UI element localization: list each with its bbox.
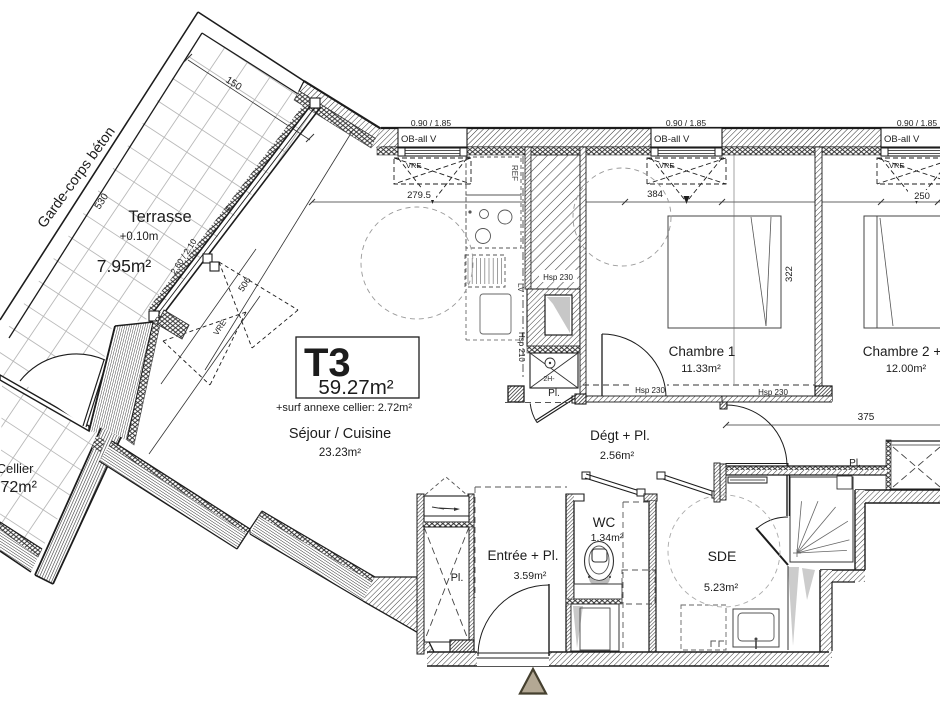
- svg-text:322: 322: [784, 266, 795, 282]
- svg-text:+0.10m: +0.10m: [120, 231, 159, 243]
- svg-text:23.23m²: 23.23m²: [319, 447, 361, 459]
- svg-text:59.27m²: 59.27m²: [318, 376, 393, 399]
- svg-text:OB-all V: OB-all V: [401, 134, 437, 145]
- svg-text:1.34m²: 1.34m²: [591, 532, 624, 544]
- svg-text:REF: REF: [510, 165, 519, 181]
- svg-text:2H-: 2H-: [543, 376, 555, 383]
- svg-text:Dégt + Pl.: Dégt + Pl.: [590, 428, 650, 443]
- svg-text:LV: LV: [516, 283, 525, 293]
- svg-text:WC: WC: [593, 515, 616, 530]
- svg-text:3.59m²: 3.59m²: [514, 570, 547, 582]
- svg-text:384: 384: [647, 189, 663, 200]
- svg-text:279.5: 279.5: [407, 190, 431, 201]
- svg-text:2.72m²: 2.72m²: [0, 479, 38, 496]
- svg-text:7.95m²: 7.95m²: [97, 256, 152, 276]
- svg-text:VRE: VRE: [889, 161, 904, 170]
- svg-text:Chambre 1: Chambre 1: [669, 344, 736, 359]
- svg-text:11.33m²: 11.33m²: [681, 363, 721, 375]
- svg-text:OB-all V: OB-all V: [884, 134, 920, 145]
- svg-text:Séjour / Cuisine: Séjour / Cuisine: [289, 426, 391, 442]
- svg-text:Cellier: Cellier: [0, 461, 34, 476]
- svg-text:+surf annexe cellier: 2.72m²: +surf annexe cellier: 2.72m²: [276, 402, 412, 414]
- svg-text:Hsp 230: Hsp 230: [543, 273, 573, 282]
- svg-text:2.56m²: 2.56m²: [600, 450, 635, 462]
- svg-text:0.90 / 1.85: 0.90 / 1.85: [666, 118, 706, 128]
- svg-text:Pl.: Pl.: [451, 572, 464, 584]
- svg-text:VRE: VRE: [659, 161, 674, 170]
- svg-text:Hsp 210: Hsp 210: [517, 332, 526, 362]
- svg-text:VRE: VRE: [406, 161, 421, 170]
- svg-text:0.90 / 1.85: 0.90 / 1.85: [411, 118, 451, 128]
- svg-text:375: 375: [858, 412, 875, 423]
- svg-text:Pl.: Pl.: [548, 388, 560, 399]
- svg-text:OB-all V: OB-all V: [654, 134, 690, 145]
- svg-text:Entrée + Pl.: Entrée + Pl.: [488, 548, 559, 563]
- svg-text:SDE: SDE: [708, 548, 737, 564]
- svg-text:0.90 / 1.85: 0.90 / 1.85: [897, 118, 937, 128]
- svg-text:Chambre 2 +: Chambre 2 +: [863, 344, 940, 359]
- svg-text:250: 250: [914, 191, 930, 202]
- svg-text:Terrasse: Terrasse: [128, 208, 191, 226]
- svg-text:Hsp 230: Hsp 230: [758, 388, 788, 397]
- svg-text:12.00m²: 12.00m²: [886, 363, 927, 375]
- svg-text:Hsp 230: Hsp 230: [635, 386, 665, 395]
- svg-text:5.23m²: 5.23m²: [704, 582, 739, 594]
